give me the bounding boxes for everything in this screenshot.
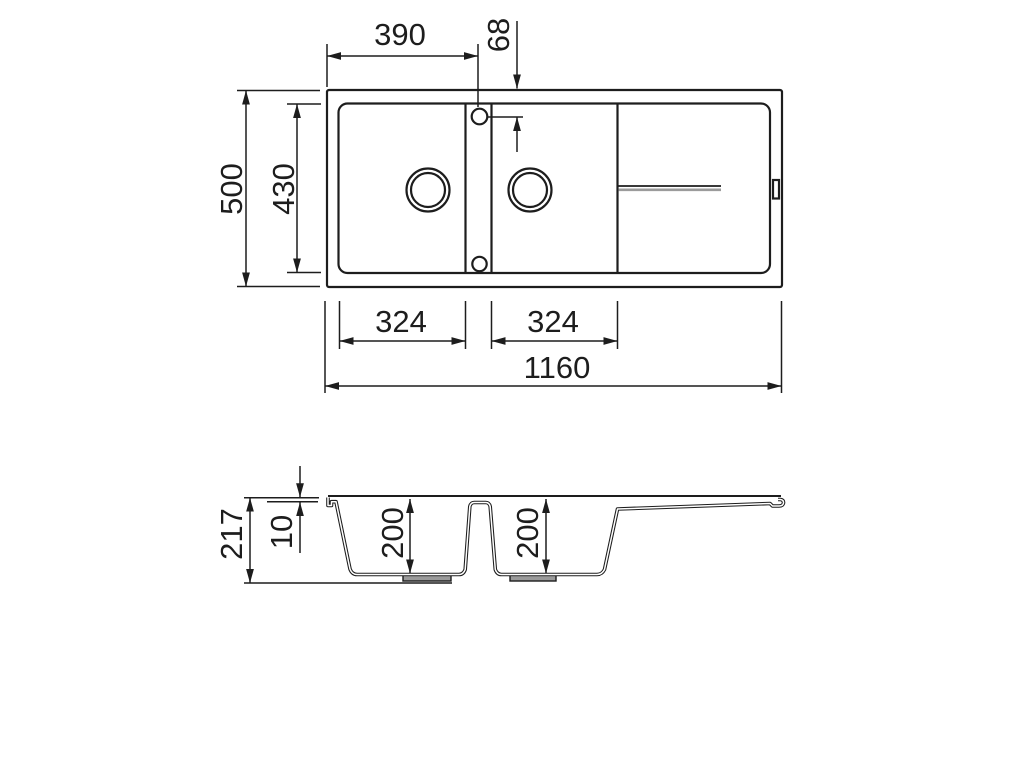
dim-label-left-bowl-width: 324: [375, 304, 427, 339]
dim-label-tap-offset-x: 390: [374, 17, 426, 52]
dim-right-bowl-depth: 200: [510, 499, 546, 574]
tap-hole: [472, 109, 488, 125]
dim-label-left-bowl-depth: 200: [375, 507, 410, 559]
dim-label-right-bowl-depth: 200: [510, 507, 545, 559]
dim-inner-depth: 430: [266, 104, 321, 273]
dim-label-rim-thickness: 10: [264, 515, 299, 549]
dim-rim-thickness: 10: [264, 466, 318, 553]
dim-overall-height: 217: [214, 498, 452, 583]
dim-label-right-bowl-width: 324: [527, 304, 579, 339]
right-drain-recess: [510, 576, 556, 582]
left-drain-recess: [403, 576, 451, 582]
dim-left-bowl-depth: 200: [375, 499, 410, 574]
dim-label-overall-height: 217: [214, 508, 249, 560]
dim-label-overall-width: 1160: [524, 350, 591, 385]
dim-label-overall-depth: 500: [214, 163, 249, 215]
top-view: [327, 90, 782, 287]
dim-left-bowl-width: 324: [340, 301, 466, 349]
dim-label-inner-depth: 430: [266, 163, 301, 215]
dim-right-bowl-width: 324: [492, 301, 618, 349]
rear-fixing-hole: [472, 257, 486, 271]
overflow-slot: [773, 180, 779, 199]
dim-label-tap-offset-y: 68: [481, 18, 516, 52]
technical-drawing-page: 390 68 500 430 324: [0, 0, 1024, 768]
sink-drawing: 390 68 500 430 324: [0, 0, 1024, 768]
